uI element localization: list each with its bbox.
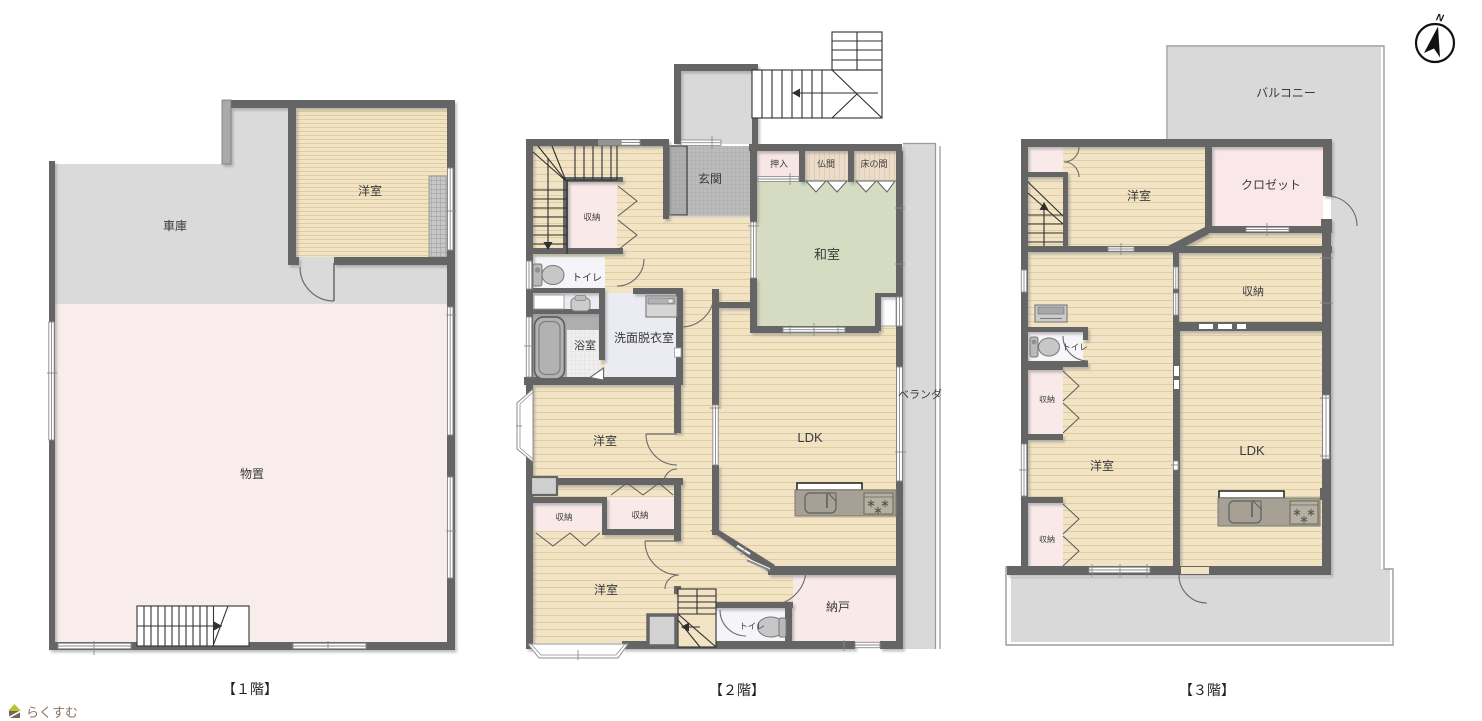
- svg-text:【２階】: 【２階】: [709, 682, 765, 698]
- svg-text:納戸: 納戸: [826, 600, 850, 614]
- svg-text:収納: 収納: [583, 212, 600, 222]
- svg-text:【１階】: 【１階】: [222, 681, 278, 697]
- svg-text:トイレ: トイレ: [739, 621, 765, 631]
- svg-text:車庫: 車庫: [163, 219, 187, 233]
- svg-text:収納: 収納: [1039, 394, 1055, 404]
- svg-text:収納: 収納: [1242, 285, 1264, 298]
- svg-text:洋室: 洋室: [593, 433, 617, 448]
- svg-text:LDK: LDK: [797, 430, 823, 445]
- svg-text:押入: 押入: [770, 158, 788, 169]
- svg-text:洋室: 洋室: [1090, 458, 1114, 473]
- svg-text:和室: 和室: [814, 247, 840, 262]
- svg-text:らくすむ: らくすむ: [26, 705, 78, 720]
- svg-text:仏間: 仏間: [817, 159, 835, 169]
- svg-text:N: N: [1435, 12, 1445, 24]
- svg-text:ベランダ: ベランダ: [898, 387, 942, 401]
- svg-text:クロゼット: クロゼット: [1241, 178, 1301, 192]
- svg-text:収納: 収納: [631, 510, 648, 520]
- svg-text:玄関: 玄関: [698, 171, 722, 186]
- svg-text:洋室: 洋室: [1127, 188, 1151, 203]
- svg-text:洋室: 洋室: [594, 582, 618, 597]
- svg-text:洋室: 洋室: [358, 183, 382, 198]
- svg-text:バルコニー: バルコニー: [1256, 86, 1316, 100]
- svg-text:物置: 物置: [240, 467, 264, 481]
- svg-text:収納: 収納: [555, 512, 572, 522]
- svg-text:床の間: 床の間: [860, 158, 887, 169]
- svg-text:洗面脱衣室: 洗面脱衣室: [614, 330, 674, 345]
- svg-text:LDK: LDK: [1239, 443, 1265, 458]
- svg-text:【３階】: 【３階】: [1179, 682, 1235, 698]
- svg-text:浴室: 浴室: [574, 338, 596, 352]
- svg-text:トイレ: トイレ: [572, 273, 602, 284]
- svg-text:収納: 収納: [1039, 534, 1055, 544]
- svg-text:トイレ: トイレ: [1062, 342, 1088, 352]
